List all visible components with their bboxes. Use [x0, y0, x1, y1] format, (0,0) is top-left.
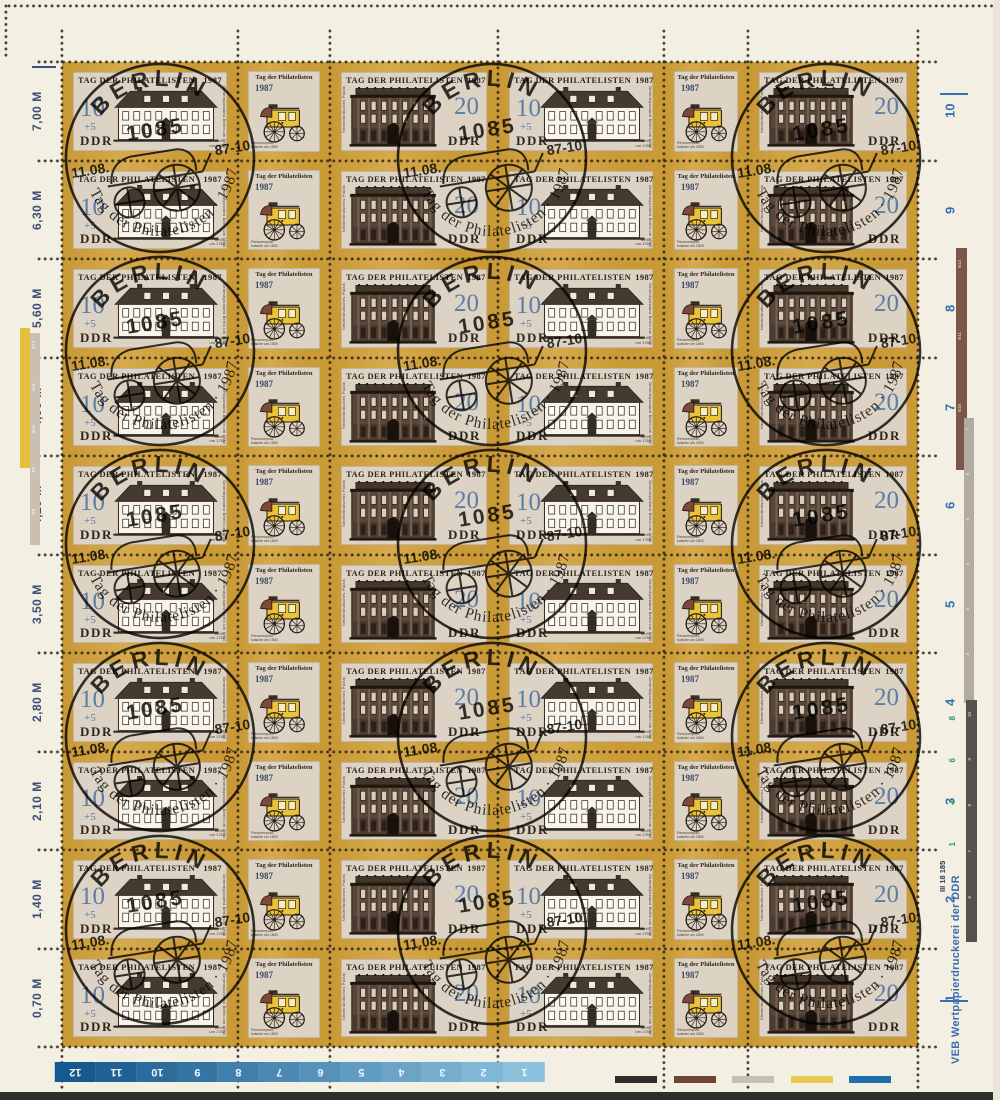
stamp-10pf: TAG DER PHILATELISTEN 1987 10 +5 DDR Ber…	[62, 62, 238, 161]
perforation-row	[36, 650, 940, 656]
bottom-counter-segment: 9	[177, 1062, 218, 1082]
stamp-value: 20	[454, 390, 479, 415]
stamp-10pf: TAG DER PHILATELISTEN 1987 10 +5 DDR Ber…	[62, 949, 238, 1048]
label-title: Tag der Philatelisten	[674, 71, 738, 81]
stamp-title: TAG DER PHILATELISTEN	[764, 765, 881, 775]
stamp-20pf: TAG DER PHILATELISTEN 1987 20 DDR Nieder…	[330, 62, 498, 161]
stamp-side-text: Niederländisches Palais	[759, 185, 764, 232]
stamp-side-text: Niederländisches Palais	[341, 185, 346, 232]
label-year: 1987	[681, 674, 738, 684]
label-year: 1987	[255, 674, 320, 684]
white-building-illustration	[113, 973, 219, 1029]
country-label: DDR	[448, 1019, 481, 1035]
stamp-year: 1987	[467, 75, 486, 85]
scan-bottom-edge	[0, 1092, 1000, 1100]
stamp-title: TAG DER PHILATELISTEN	[78, 863, 195, 873]
label-title: Tag der Philatelisten	[674, 465, 738, 475]
stamp-title: TAG DER PHILATELISTEN	[346, 469, 463, 479]
right-margin-row-number: 5	[941, 572, 959, 636]
country-label: DDR	[80, 133, 113, 149]
perforation-row	[36, 355, 940, 361]
stamp-value: 20	[874, 291, 899, 316]
label-caption: Personenpost-kutsche um 1800	[251, 338, 278, 346]
stamp-10pf: TAG DER PHILATELISTEN 1987 10 +5 DDR Ber…	[62, 850, 238, 949]
stamp-value: 10 +5	[516, 195, 541, 232]
stamp-title: TAG DER PHILATELISTEN	[346, 272, 463, 282]
white-building-illustration	[113, 776, 219, 832]
stamp-side-text: Niederländisches Palais	[341, 874, 346, 921]
mail-coach-illustration	[679, 491, 733, 538]
stamp-year: 1987	[885, 272, 904, 282]
green-control-digit: 4	[948, 800, 957, 804]
stamp-title: TAG DER PHILATELISTEN	[346, 863, 463, 873]
decorative-coach-label: Tag der Philatelisten 1987 Personenpost-…	[664, 949, 748, 1048]
label-caption: Personenpost-kutsche um 1800	[677, 338, 704, 346]
stamp-side-text: Niederländisches Palais	[341, 973, 346, 1020]
stamp-side-text: Niederländisches Palais	[759, 677, 764, 724]
palais-building-illustration	[767, 86, 855, 149]
stamp-side-text: Generalpostamt Berlin um 1780	[222, 579, 227, 641]
stamp-10pf: TAG DER PHILATELISTEN 1987 10 +5 DDR Ber…	[62, 358, 238, 457]
stamp-value: 10 +5	[516, 490, 541, 527]
stamp-10pf: TAG DER PHILATELISTEN 1987 10 +5 DDR Ber…	[498, 752, 664, 851]
stamp-year: 1987	[885, 666, 904, 676]
stamp-20pf: TAG DER PHILATELISTEN 1987 20 DDR Nieder…	[330, 949, 498, 1048]
mail-coach-illustration	[257, 983, 311, 1030]
mail-coach-illustration	[257, 97, 311, 144]
label-caption: Personenpost-kutsche um 1800	[251, 437, 278, 445]
palais-building-illustration	[349, 874, 437, 937]
label-caption: Personenpost-kutsche um 1800	[251, 141, 278, 149]
stamp-side-text: Generalpostamt Berlin um 1780	[222, 480, 227, 542]
white-building-illustration	[539, 382, 645, 438]
stamp-year: 1987	[885, 174, 904, 184]
stamp-20pf: TAG DER PHILATELISTEN 1987 20 DDR Nieder…	[330, 752, 498, 851]
label-caption: Personenpost-kutsche um 1800	[677, 240, 704, 248]
country-label: DDR	[516, 133, 549, 149]
stamp-title: TAG DER PHILATELISTEN	[78, 765, 195, 775]
stamp-title: TAG DER PHILATELISTEN	[78, 272, 195, 282]
stamp-year: 1987	[885, 765, 904, 775]
white-building-illustration	[539, 776, 645, 832]
white-building-illustration	[539, 875, 645, 931]
bottom-counter-segment: 12	[55, 1062, 96, 1082]
white-building-illustration	[113, 481, 219, 537]
label-caption: Personenpost-kutsche um 1800	[251, 929, 278, 937]
label-year: 1987	[255, 773, 320, 783]
stamp-title: TAG DER PHILATELISTEN	[514, 568, 631, 578]
stamp-value: 20	[874, 981, 899, 1006]
palais-building-illustration	[767, 185, 855, 248]
stamp-10pf: TAG DER PHILATELISTEN 1987 10 +5 DDR Ber…	[62, 456, 238, 555]
stamp-year: 1987	[885, 962, 904, 972]
decorative-coach-label: Tag der Philatelisten 1987 Personenpost-…	[238, 850, 330, 949]
palais-building-illustration	[767, 579, 855, 642]
mail-coach-illustration	[257, 786, 311, 833]
country-label: DDR	[80, 231, 113, 247]
stamp-year: 1987	[467, 371, 486, 381]
stamp-side-text: Niederländisches Palais	[759, 283, 764, 330]
country-label: DDR	[516, 428, 549, 444]
stamp-value: 10 +5	[516, 392, 541, 429]
stamp-20pf: TAG DER PHILATELISTEN 1987 20 DDR Nieder…	[748, 358, 918, 457]
label-year: 1987	[681, 83, 738, 93]
stamp-value: 20	[874, 685, 899, 710]
mail-coach-illustration	[257, 294, 311, 341]
palais-building-illustration	[349, 382, 437, 445]
label-title: Tag der Philatelisten	[248, 564, 320, 574]
country-label: DDR	[80, 527, 113, 543]
white-building-illustration	[539, 284, 645, 340]
decorative-coach-label: Tag der Philatelisten 1987 Personenpost-…	[238, 456, 330, 555]
stamp-year: 1987	[635, 469, 653, 479]
label-caption: Personenpost-kutsche um 1800	[251, 535, 278, 543]
stamp-value: 10 +5	[80, 293, 105, 330]
stamp-value: 10 +5	[80, 884, 105, 921]
stamp-value: 20	[874, 390, 899, 415]
country-label: DDR	[80, 625, 113, 641]
palais-building-illustration	[349, 283, 437, 346]
label-title: Tag der Philatelisten	[248, 367, 320, 377]
country-label: DDR	[516, 625, 549, 641]
mail-coach-illustration	[679, 786, 733, 833]
stamp-side-text: Generalpostamt Berlin um 1780	[648, 283, 653, 345]
white-building-illustration	[113, 87, 219, 143]
right-grey-control-strip: 765432	[964, 418, 974, 703]
stamp-title: TAG DER PHILATELISTEN	[346, 765, 463, 775]
stamp-side-text: Niederländisches Palais	[759, 973, 764, 1020]
stamp-side-text: Generalpostamt Berlin um 1780	[222, 382, 227, 444]
label-year: 1987	[255, 280, 320, 290]
stamp-year: 1987	[203, 765, 222, 775]
stamp-10pf: TAG DER PHILATELISTEN 1987 10 +5 DDR Ber…	[498, 456, 664, 555]
stamp-value: 10 +5	[516, 96, 541, 133]
label-title: Tag der Philatelisten	[674, 367, 738, 377]
left-yellow-control-strip	[20, 328, 30, 468]
label-year: 1987	[681, 280, 738, 290]
stamp-year: 1987	[203, 75, 222, 85]
perforation-row	[36, 1044, 940, 1050]
stamp-side-text: Generalpostamt Berlin um 1780	[648, 776, 653, 838]
stamp-value: 10 +5	[80, 687, 105, 724]
label-caption: Personenpost-kutsche um 1800	[677, 732, 704, 740]
country-label: DDR	[80, 1019, 113, 1035]
stamp-20pf: TAG DER PHILATELISTEN 1987 20 DDR Nieder…	[748, 752, 918, 851]
bottom-counter-segment: 11	[96, 1062, 137, 1082]
stamp-side-text: Generalpostamt Berlin um 1780	[648, 677, 653, 739]
label-year: 1987	[255, 477, 320, 487]
decorative-coach-label: Tag der Philatelisten 1987 Personenpost-…	[238, 949, 330, 1048]
stamp-20pf: TAG DER PHILATELISTEN 1987 20 DDR Nieder…	[330, 259, 498, 358]
right-dark-control-strip: 109876	[966, 700, 977, 942]
stamp-year: 1987	[203, 863, 222, 873]
left-margin-row-value: 2,80 M	[28, 660, 46, 744]
decorative-coach-label: Tag der Philatelisten 1987 Personenpost-…	[664, 752, 748, 851]
stamp-title: TAG DER PHILATELISTEN	[514, 666, 631, 676]
country-label: DDR	[448, 625, 481, 641]
decorative-coach-label: Tag der Philatelisten 1987 Personenpost-…	[238, 161, 330, 260]
stamp-year: 1987	[203, 174, 222, 184]
stamp-year: 1987	[635, 666, 653, 676]
stamp-20pf: TAG DER PHILATELISTEN 1987 20 DDR Nieder…	[330, 161, 498, 260]
country-label: DDR	[868, 330, 901, 346]
stamp-value: 20	[874, 587, 899, 612]
stamp-20pf: TAG DER PHILATELISTEN 1987 20 DDR Nieder…	[748, 62, 918, 161]
stamp-value: 20	[874, 193, 899, 218]
country-label: DDR	[516, 527, 549, 543]
country-label: DDR	[448, 822, 481, 838]
stamp-title: TAG DER PHILATELISTEN	[78, 75, 195, 85]
left-margin-row-value: 0,70 M	[28, 956, 46, 1040]
label-caption: Personenpost-kutsche um 1800	[251, 831, 278, 839]
country-label: DDR	[868, 231, 901, 247]
country-label: DDR	[448, 527, 481, 543]
label-year: 1987	[681, 773, 738, 783]
stamp-10pf: TAG DER PHILATELISTEN 1987 10 +5 DDR Ber…	[62, 752, 238, 851]
stamp-year: 1987	[203, 371, 222, 381]
stamp-value: 20	[454, 587, 479, 612]
mail-coach-illustration	[257, 885, 311, 932]
label-title: Tag der Philatelisten	[674, 170, 738, 180]
stamp-title: TAG DER PHILATELISTEN	[78, 174, 195, 184]
print-color-swatch	[791, 1076, 833, 1083]
palais-building-illustration	[767, 874, 855, 937]
label-title: Tag der Philatelisten	[674, 564, 738, 574]
palais-building-illustration	[349, 185, 437, 248]
stamp-title: TAG DER PHILATELISTEN	[764, 666, 881, 676]
label-caption: Personenpost-kutsche um 1800	[677, 1028, 704, 1036]
country-label: DDR	[868, 133, 901, 149]
stamp-10pf: TAG DER PHILATELISTEN 1987 10 +5 DDR Ber…	[498, 62, 664, 161]
scan-right-edge	[993, 0, 1000, 1100]
stamp-year: 1987	[635, 371, 653, 381]
decorative-coach-label: Tag der Philatelisten 1987 Personenpost-…	[664, 653, 748, 752]
country-label: DDR	[448, 428, 481, 444]
decorative-coach-label: Tag der Philatelisten 1987 Personenpost-…	[664, 456, 748, 555]
stamp-title: TAG DER PHILATELISTEN	[346, 174, 463, 184]
stamp-year: 1987	[635, 75, 653, 85]
stamp-side-text: Generalpostamt Berlin um 1780	[648, 382, 653, 444]
stamp-value: 20	[454, 882, 479, 907]
stamp-side-text: Generalpostamt Berlin um 1780	[222, 874, 227, 936]
decorative-coach-label: Tag der Philatelisten 1987 Personenpost-…	[238, 752, 330, 851]
stamp-10pf: TAG DER PHILATELISTEN 1987 10 +5 DDR Ber…	[62, 161, 238, 260]
perforation-column	[327, 28, 333, 1090]
stamp-value: 20	[454, 94, 479, 119]
stamp-value: 20	[874, 784, 899, 809]
country-label: DDR	[448, 921, 481, 937]
stamp-20pf: TAG DER PHILATELISTEN 1987 20 DDR Nieder…	[330, 653, 498, 752]
palais-building-illustration	[767, 283, 855, 346]
stamp-side-text: Niederländisches Palais	[341, 579, 346, 626]
white-building-illustration	[539, 973, 645, 1029]
label-year: 1987	[681, 182, 738, 192]
stamp-year: 1987	[203, 568, 222, 578]
stamp-20pf: TAG DER PHILATELISTEN 1987 20 DDR Nieder…	[330, 358, 498, 457]
label-caption: Personenpost-kutsche um 1800	[677, 437, 704, 445]
stamp-value: 10 +5	[516, 687, 541, 724]
stamp-year: 1987	[635, 272, 653, 282]
label-year: 1987	[255, 970, 320, 980]
stamp-20pf: TAG DER PHILATELISTEN 1987 20 DDR Nieder…	[748, 161, 918, 260]
mail-coach-illustration	[679, 885, 733, 932]
decorative-coach-label: Tag der Philatelisten 1987 Personenpost-…	[238, 358, 330, 457]
country-label: DDR	[516, 724, 549, 740]
label-title: Tag der Philatelisten	[248, 465, 320, 475]
stamp-value: 10 +5	[80, 490, 105, 527]
stamp-value: 10 +5	[80, 589, 105, 626]
stamp-side-text: Niederländisches Palais	[759, 382, 764, 429]
stamp-year: 1987	[635, 174, 653, 184]
stamp-year: 1987	[467, 272, 486, 282]
decorative-coach-label: Tag der Philatelisten 1987 Personenpost-…	[238, 555, 330, 654]
stamp-side-text: Niederländisches Palais	[341, 480, 346, 527]
mail-coach-illustration	[679, 195, 733, 242]
label-year: 1987	[255, 576, 320, 586]
perforation-column	[495, 28, 501, 1090]
stamp-value: 10 +5	[516, 884, 541, 921]
label-caption: Personenpost-kutsche um 1800	[677, 634, 704, 642]
bottom-counter-segment: 4	[381, 1062, 422, 1082]
mail-coach-illustration	[679, 392, 733, 439]
stamp-side-text: Generalpostamt Berlin um 1780	[222, 973, 227, 1035]
palais-building-illustration	[349, 86, 437, 149]
stamp-title: TAG DER PHILATELISTEN	[514, 75, 631, 85]
white-building-illustration	[113, 875, 219, 931]
green-control-digit: 6	[948, 758, 957, 762]
stamp-10pf: TAG DER PHILATELISTEN 1987 10 +5 DDR Ber…	[498, 555, 664, 654]
stamp-value: 20	[874, 488, 899, 513]
white-building-illustration	[113, 579, 219, 635]
decorative-coach-label: Tag der Philatelisten 1987 Personenpost-…	[238, 259, 330, 358]
palais-building-illustration	[767, 382, 855, 445]
country-label: DDR	[868, 527, 901, 543]
label-title: Tag der Philatelisten	[248, 662, 320, 672]
white-building-illustration	[539, 87, 645, 143]
stamp-title: TAG DER PHILATELISTEN	[78, 666, 195, 676]
country-label: DDR	[80, 921, 113, 937]
stamp-10pf: TAG DER PHILATELISTEN 1987 10 +5 DDR Ber…	[498, 358, 664, 457]
label-year: 1987	[681, 576, 738, 586]
stamp-title: TAG DER PHILATELISTEN	[346, 75, 463, 85]
label-title: Tag der Philatelisten	[248, 958, 320, 968]
stamp-title: TAG DER PHILATELISTEN	[514, 863, 631, 873]
mail-coach-illustration	[679, 97, 733, 144]
country-label: DDR	[868, 428, 901, 444]
stamp-value: 10 +5	[516, 293, 541, 330]
stamp-title: TAG DER PHILATELISTEN	[764, 469, 881, 479]
white-building-illustration	[113, 382, 219, 438]
stamp-year: 1987	[467, 765, 486, 775]
label-caption: Personenpost-kutsche um 1800	[677, 141, 704, 149]
white-building-illustration	[539, 481, 645, 537]
stamp-title: TAG DER PHILATELISTEN	[514, 272, 631, 282]
right-margin-row-number: 10	[941, 79, 959, 143]
stamp-year: 1987	[885, 371, 904, 381]
palais-building-illustration	[349, 579, 437, 642]
left-margin-row-value: 1,40 M	[28, 857, 46, 941]
sheet-edge-perforation-top	[6, 3, 994, 9]
stamp-year: 1987	[467, 469, 486, 479]
stamp-year: 1987	[467, 666, 486, 676]
mail-coach-illustration	[257, 491, 311, 538]
white-building-illustration	[539, 579, 645, 635]
print-color-swatch	[674, 1076, 716, 1083]
white-building-illustration	[113, 284, 219, 340]
decorative-coach-label: Tag der Philatelisten 1987 Personenpost-…	[238, 62, 330, 161]
label-caption: Personenpost-kutsche um 1800	[251, 634, 278, 642]
stamp-title: TAG DER PHILATELISTEN	[764, 272, 881, 282]
stamp-year: 1987	[635, 765, 653, 775]
bottom-counter-segment: 10	[137, 1062, 178, 1082]
stamp-value: 20	[874, 94, 899, 119]
stamp-title: TAG DER PHILATELISTEN	[514, 765, 631, 775]
label-title: Tag der Philatelisten	[674, 268, 738, 278]
stamp-title: TAG DER PHILATELISTEN	[764, 962, 881, 972]
stamp-20pf: TAG DER PHILATELISTEN 1987 20 DDR Nieder…	[330, 456, 498, 555]
country-label: DDR	[448, 330, 481, 346]
stamp-value: 20	[454, 784, 479, 809]
country-label: DDR	[516, 822, 549, 838]
label-caption: Personenpost-kutsche um 1800	[251, 240, 278, 248]
stamp-title: TAG DER PHILATELISTEN	[78, 469, 195, 479]
stamp-side-text: Generalpostamt Berlin um 1780	[222, 86, 227, 148]
stamp-value: 10 +5	[516, 589, 541, 626]
stamp-10pf: TAG DER PHILATELISTEN 1987 10 +5 DDR Ber…	[498, 161, 664, 260]
stamp-20pf: TAG DER PHILATELISTEN 1987 20 DDR Nieder…	[748, 456, 918, 555]
left-margin-row-value: 3,50 M	[28, 562, 46, 646]
label-caption: Personenpost-kutsche um 1800	[677, 929, 704, 937]
stamp-year: 1987	[203, 469, 222, 479]
country-label: DDR	[868, 921, 901, 937]
label-title: Tag der Philatelisten	[674, 662, 738, 672]
country-label: DDR	[448, 724, 481, 740]
stamp-side-text: Niederländisches Palais	[759, 776, 764, 823]
label-title: Tag der Philatelisten	[248, 761, 320, 771]
label-year: 1987	[681, 379, 738, 389]
white-building-illustration	[539, 185, 645, 241]
country-label: DDR	[80, 724, 113, 740]
stamp-title: TAG DER PHILATELISTEN	[78, 962, 195, 972]
stamp-side-text: Niederländisches Palais	[341, 382, 346, 429]
stamp-title: TAG DER PHILATELISTEN	[346, 962, 463, 972]
stamp-10pf: TAG DER PHILATELISTEN 1987 10 +5 DDR Ber…	[62, 259, 238, 358]
label-caption: Personenpost-kutsche um 1800	[677, 831, 704, 839]
sheet-edge-perforation-left	[3, 3, 9, 59]
stamp-20pf: TAG DER PHILATELISTEN 1987 20 DDR Nieder…	[748, 949, 918, 1048]
label-year: 1987	[255, 83, 320, 93]
decorative-coach-label: Tag der Philatelisten 1987 Personenpost-…	[664, 161, 748, 260]
palais-building-illustration	[767, 677, 855, 740]
perforation-row	[36, 749, 940, 755]
mail-coach-illustration	[679, 589, 733, 636]
margin-tick	[32, 66, 56, 68]
perforation-row	[36, 847, 940, 853]
mail-coach-illustration	[679, 294, 733, 341]
left-margin-row-value: 7,00 M	[28, 69, 46, 153]
left-margin-row-value: 2,10 M	[28, 759, 46, 843]
perforation-column	[745, 28, 751, 1090]
stamp-value: 20	[454, 685, 479, 710]
perforation-row	[36, 552, 940, 558]
stamp-title: TAG DER PHILATELISTEN	[514, 469, 631, 479]
stamp-title: TAG DER PHILATELISTEN	[514, 174, 631, 184]
mail-coach-illustration	[257, 688, 311, 735]
stamp-value: 10 +5	[516, 786, 541, 823]
stamp-year: 1987	[885, 469, 904, 479]
perforation-row	[36, 256, 940, 262]
label-title: Tag der Philatelisten	[248, 170, 320, 180]
